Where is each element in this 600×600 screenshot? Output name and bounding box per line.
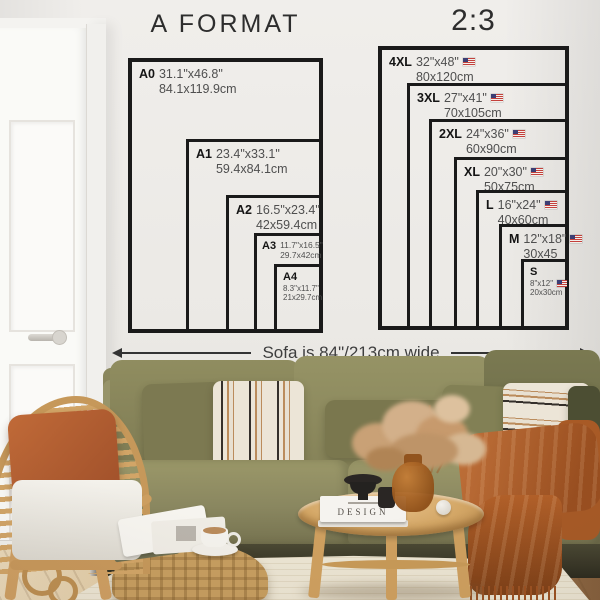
striped-pillow [213, 381, 304, 468]
size-code: 2XL [439, 127, 462, 157]
olive-pillow [142, 382, 225, 467]
size-cm: 42x59.4cm [256, 218, 320, 233]
table-shelf [322, 560, 470, 569]
size-code: M [509, 232, 519, 262]
book-title: DESIGN [338, 507, 389, 517]
size-inches: 32"x48" [416, 55, 459, 70]
book-photo [176, 526, 196, 541]
a-format-title: A FORMAT [128, 10, 323, 39]
size-inches: 12"x18" [523, 232, 566, 247]
size-inches: 16.5"x23.4" [256, 203, 320, 218]
arrow-left-icon [112, 348, 122, 358]
size-code: A2 [236, 203, 252, 233]
us-flag-icon [545, 201, 557, 209]
us-flag-icon [557, 280, 567, 287]
size-code: A1 [196, 147, 212, 177]
size-inches: 11.7"x16.5" [280, 240, 323, 250]
size-cm: 20x30cm [530, 288, 566, 297]
size-cm: 60x90cm [466, 142, 525, 157]
us-flag-icon [570, 235, 582, 243]
size-inches: 31.1"x46.8" [159, 67, 223, 82]
size-cm: 21x29.7cm [283, 293, 320, 302]
size-code: A4 [283, 271, 320, 284]
ratio-2-3-chart: 4XL 32"x48" 80x120cm 3XL 27"x41" 70x105c… [378, 46, 569, 330]
rattan-chair-rail [10, 560, 122, 570]
us-flag-icon [531, 168, 543, 176]
rattan-chair-detail [48, 576, 78, 600]
black-bowl [358, 492, 368, 500]
size-box-s: S 8"x12" 20x30cm [521, 259, 569, 330]
us-flag-icon [463, 58, 475, 66]
size-inches: 16"x24" [498, 198, 541, 213]
a-format-chart: A0 31.1"x46.8" 84.1x119.9cm A1 23.4"x33.… [128, 58, 323, 333]
size-inches: 8.3"x11.7" [283, 284, 319, 293]
size-code: L [486, 198, 494, 228]
size-inches: 8"x12" [530, 279, 553, 288]
ratio-2-3-title: 2:3 [378, 4, 569, 38]
size-code: S [530, 266, 566, 279]
door-handle-rosette [52, 330, 67, 345]
size-inches: 20"x30" [484, 165, 527, 180]
size-cm: 84.1x119.9cm [159, 82, 237, 97]
size-inches: 27"x41" [444, 91, 487, 106]
size-code: A0 [139, 67, 155, 97]
size-code: 3XL [417, 91, 440, 121]
coffee-surface [203, 527, 226, 534]
size-code: A3 [262, 240, 276, 260]
decor-sphere [436, 500, 451, 515]
size-box-a4: A4 8.3"x11.7" 21x29.7cm [274, 264, 323, 333]
size-inches: 24"x36" [466, 127, 509, 142]
book-small-text [348, 502, 378, 504]
us-flag-icon [513, 130, 525, 138]
size-guide-mockup: A FORMAT 2:3 A0 31.1"x46.8" 84.1x119.9cm… [0, 0, 600, 600]
size-cm: 29.7x42cm [280, 250, 323, 260]
size-inches: 23.4"x33.1" [216, 147, 280, 162]
cup-handle [226, 532, 241, 547]
door-panel [9, 120, 75, 332]
amber-vase [392, 462, 434, 512]
arrow-line [122, 352, 251, 354]
size-code: 4XL [389, 55, 412, 85]
us-flag-icon [491, 94, 503, 102]
size-cm: 59.4x84.1cm [216, 162, 288, 177]
